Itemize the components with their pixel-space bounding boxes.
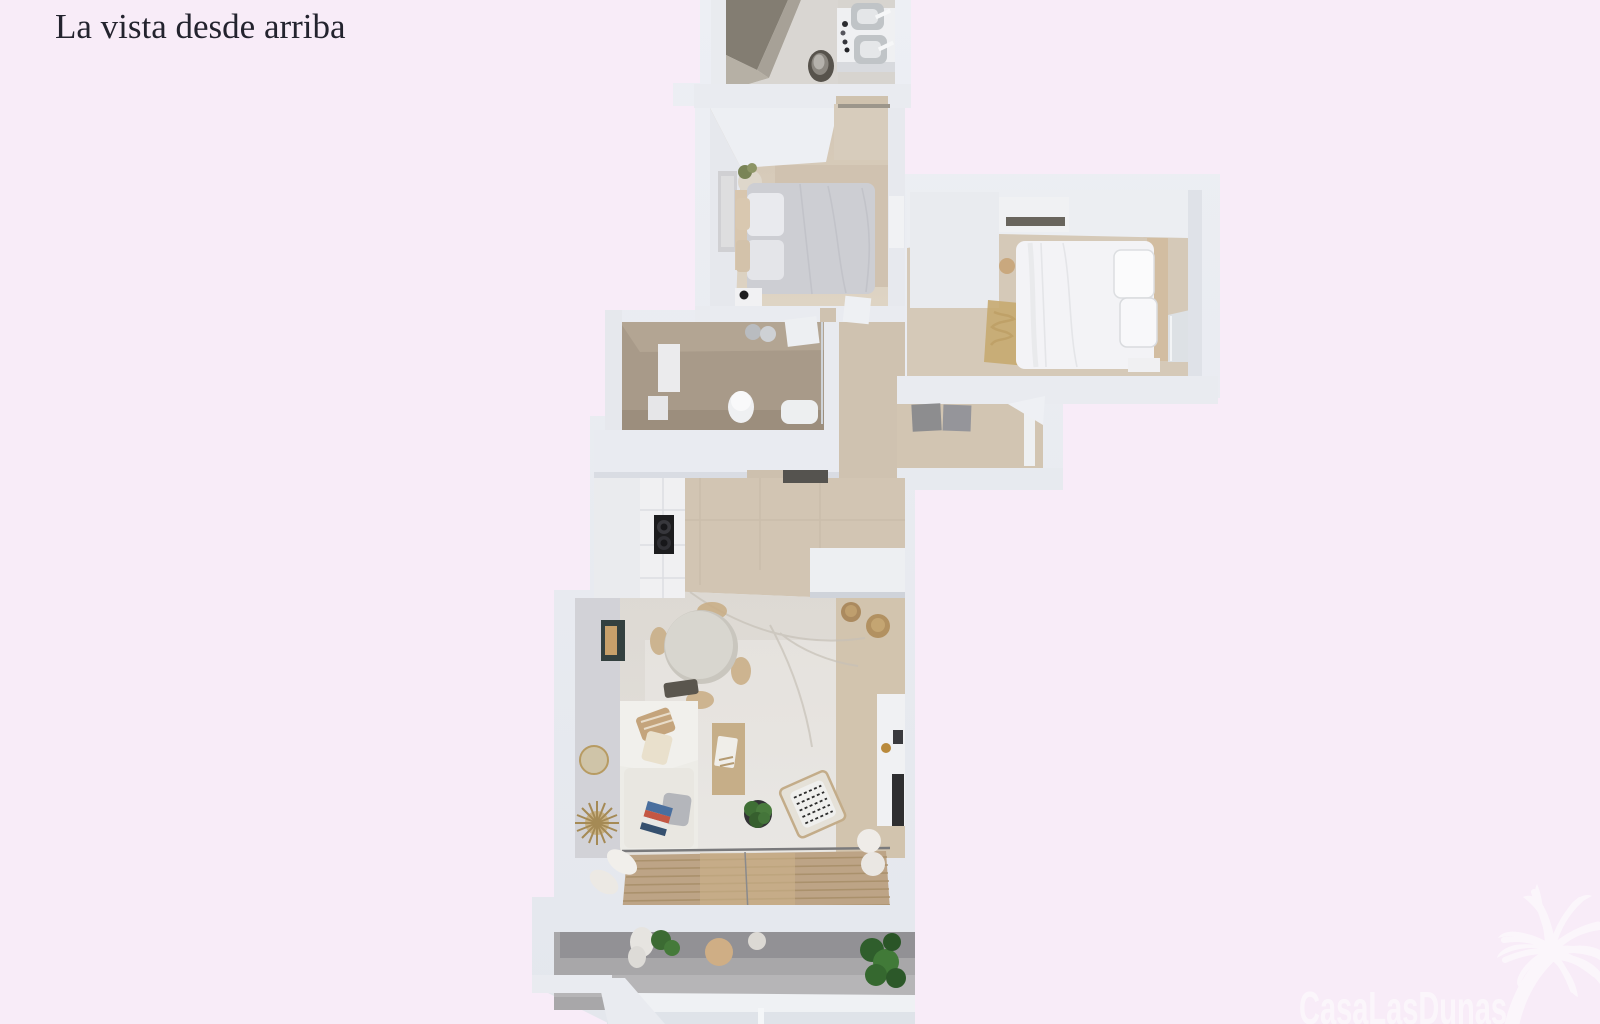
svg-text:CasaLasDunas: CasaLasDunas: [1299, 982, 1507, 1024]
svg-text:La vista desde arriba: La vista desde arriba: [55, 7, 346, 46]
